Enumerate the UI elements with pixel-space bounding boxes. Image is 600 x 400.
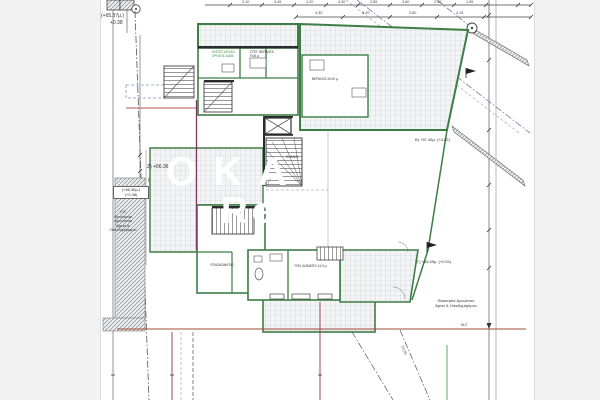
dim-top-3: 1.20 [306, 0, 313, 4]
dim-top-7: 2.40 [434, 0, 441, 4]
dim-top-5: 2.85 [370, 0, 377, 4]
level-label-topleft-2: +0.38 [110, 21, 123, 27]
note-left-line4: Άρτια & Οικοδομήσιμον [109, 223, 136, 233]
dimension-lines-right [487, 0, 497, 400]
note-right: Ιδιοκτησία Αγνώστου Άρτια & Οικοδομήσιμο… [430, 299, 482, 308]
dim-top-2: 3.45 [274, 0, 281, 4]
room-label-covered: ΣΤΕΓ. ΒΕΡΑΝΤΑ 9.00 μ. [250, 51, 274, 59]
level-label-right-upper: Β) +57.46μ. (+4.52) [415, 138, 450, 143]
exterior-stair-2 [204, 80, 234, 112]
terrace-right [340, 250, 418, 302]
exterior-stair-1 [164, 66, 194, 98]
floor-plan-page: (+65.37μ.) +0.38 Ζ) +66.36μ.) (+66.36μ.)… [0, 0, 600, 400]
room-label-veranda: ΒΕΡΑΝΤΑ 30.00 μ. [312, 78, 339, 82]
room-label-bedroom2: ΥΠΝ. ΔΩΜΑΤΙΟ 14.9 μ. [294, 265, 327, 269]
dim-second-3: 3.80 [409, 11, 416, 15]
dim-second-4: 4.15 [456, 11, 463, 15]
note-right-line2: Άρτια & Οικοδομήσιμον [435, 303, 477, 308]
dim-second-1: 4.35 [315, 11, 322, 15]
rooms-bottom-strip [248, 247, 343, 300]
room-label-garden: ΚΗΠΟΣ ΑΠΟΚΛ. ΧΡΗΣΗΣ ΔΙΑΜ. [212, 51, 236, 59]
level-box-line2: (+0.38) [125, 192, 138, 197]
room-label-bedroom1: ΥΠΝΟΔΩΜΑΤΙΟ [210, 264, 234, 268]
note-left: Υ.Π. Ιδιοκτησία Αγνώστου Άρτια & Οικοδομ… [104, 210, 142, 233]
dim-top-8: 1.95 [466, 0, 473, 4]
building-line-label: Ο.Γ. [461, 323, 468, 328]
dim-top-4: 4.30 [338, 0, 345, 4]
watermark-line2: Rea [221, 190, 301, 232]
garden-line2: ΧΡΗΣΗΣ ΔΙΑΜ. [212, 54, 234, 58]
dim-top-1: 2.10 [242, 0, 249, 4]
level-box: (+66.36μ.) (+0.38) [113, 186, 149, 199]
elevator-shaft [263, 116, 293, 136]
level-label-topleft-1: (+65.37μ.) [101, 14, 124, 20]
dim-second-2: 5.20 [362, 11, 369, 15]
dim-top-6: 3.60 [402, 0, 409, 4]
terrace-upper-left [198, 24, 298, 48]
neighbor-building-hatch-strip [103, 178, 145, 331]
veranda-room [302, 55, 368, 117]
covered-line2: 9.00 μ. [250, 54, 260, 58]
watermark-line1: ΟΚΑ [166, 150, 303, 195]
level-label-right-lower: Γ) +65.49μ. (+0.51) [417, 260, 451, 265]
